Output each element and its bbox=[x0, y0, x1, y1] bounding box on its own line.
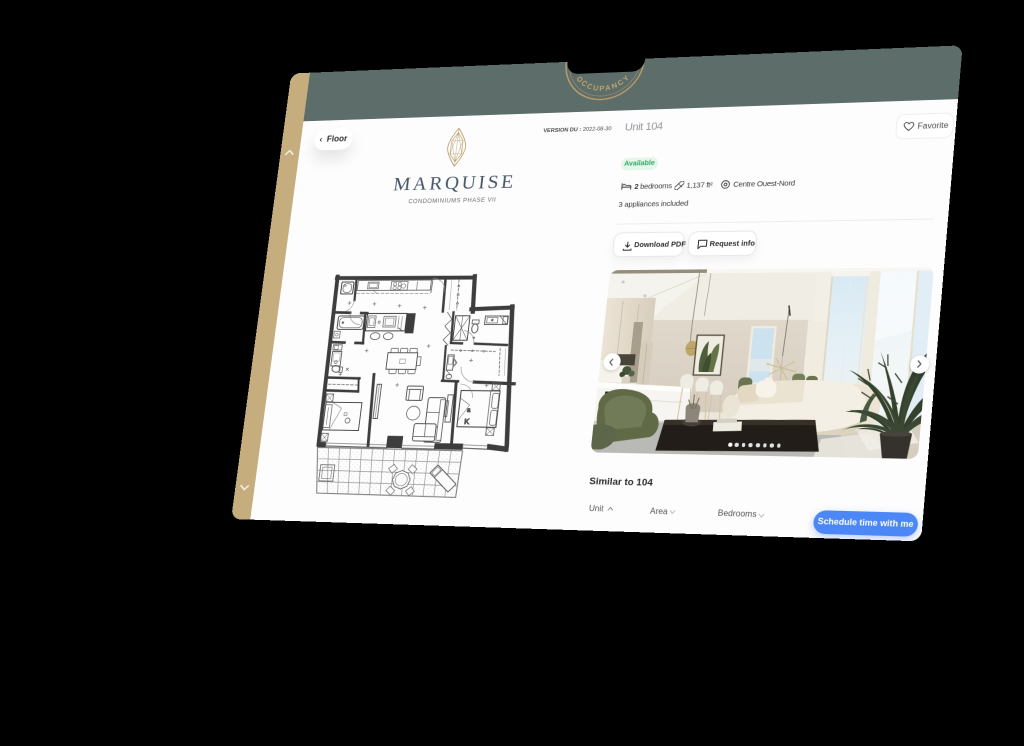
svg-text:a: a bbox=[467, 407, 471, 414]
svg-text:K: K bbox=[464, 418, 470, 426]
svg-text:OCCUPANCY: OCCUPANCY bbox=[573, 73, 633, 94]
